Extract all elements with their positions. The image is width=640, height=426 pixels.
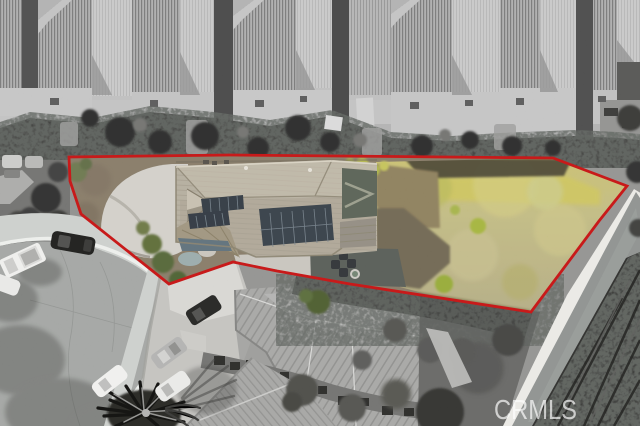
svg-text:CRMLS: CRMLS xyxy=(494,394,577,425)
